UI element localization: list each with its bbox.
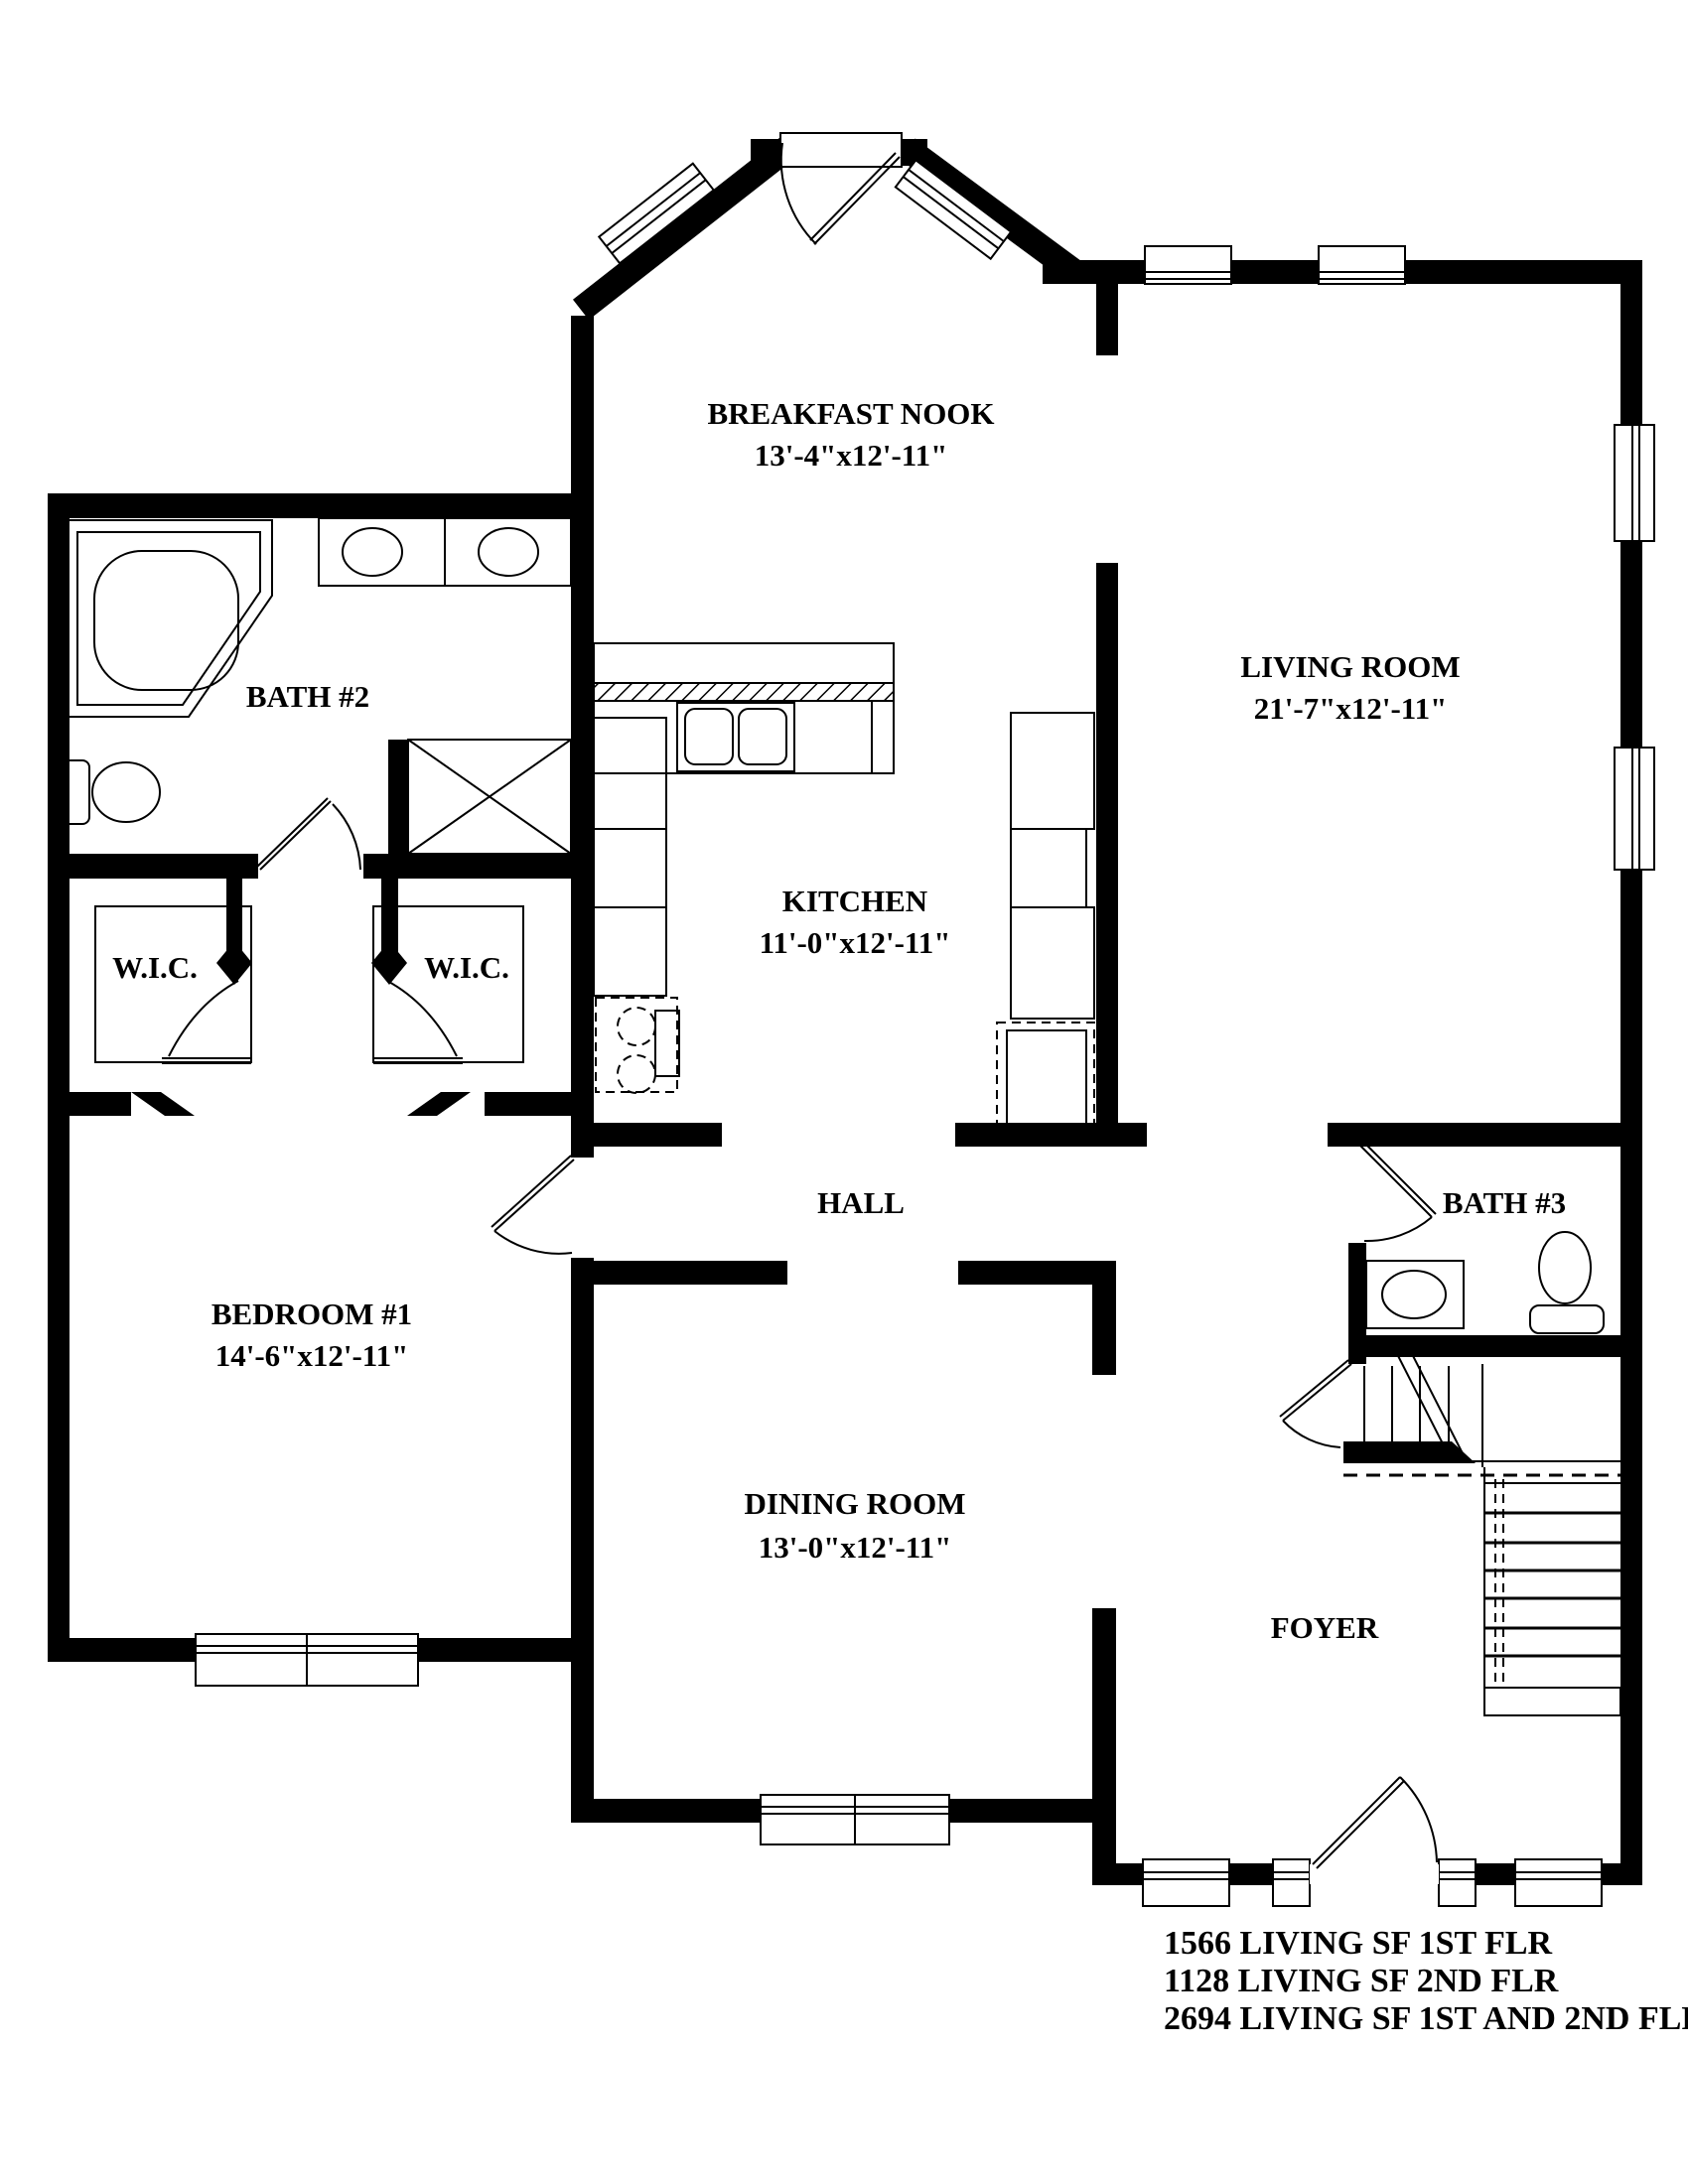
area-summary-line-1: 1566 LIVING SF 1ST FLR <box>1164 1925 1553 1962</box>
nook-top-window-right <box>1319 246 1405 284</box>
bath3-pedestal-sink <box>1530 1232 1604 1333</box>
room-label-breakfast-nook: BREAKFAST NOOK <box>707 396 994 431</box>
bath2-corner-tub <box>66 520 272 717</box>
nook-exterior-door <box>780 133 902 244</box>
understair-closet-door <box>1280 1360 1351 1447</box>
floorplan-drawing: BREAKFAST NOOK 13'-4"x12'-11" LIVING ROO… <box>0 0 1688 2184</box>
room-label-hall: HALL <box>817 1185 905 1220</box>
foyer-front-window-left <box>1143 1859 1229 1906</box>
label-layer: BREAKFAST NOOK 13'-4"x12'-11" LIVING ROO… <box>112 396 1688 2037</box>
front-door-sidelight-left <box>1273 1859 1310 1906</box>
bedroom-window <box>196 1634 418 1686</box>
floorplan-sheet: BREAKFAST NOOK 13'-4"x12'-11" LIVING ROO… <box>0 0 1688 2184</box>
kitchen-counters <box>594 643 894 773</box>
kitchen-left-cabinets <box>594 718 666 996</box>
kitchen-pantry-cabinets <box>997 713 1094 1135</box>
area-summary-line-3: 2694 LIVING SF 1ST AND 2ND FLR <box>1164 2000 1688 2037</box>
room-dims-living-room: 21'-7"x12'-11" <box>1254 691 1448 726</box>
stair-layer <box>1343 1340 1620 1715</box>
room-dims-dining-room: 13'-0"x12'-11" <box>759 1530 952 1565</box>
wic-left-door <box>162 981 251 1063</box>
room-label-foyer: FOYER <box>1271 1610 1379 1645</box>
room-label-dining-room: DINING ROOM <box>744 1486 965 1521</box>
room-label-living-room: LIVING ROOM <box>1240 649 1460 684</box>
nook-top-window-left <box>1145 246 1231 284</box>
room-label-bath3: BATH #3 <box>1443 1185 1566 1220</box>
room-label-wic-right: W.I.C. <box>424 950 509 985</box>
front-entry-door <box>1310 1777 1439 1884</box>
bath3-door <box>1358 1141 1436 1241</box>
bath2-toilet <box>58 760 160 824</box>
room-label-bedroom1: BEDROOM #1 <box>211 1297 412 1331</box>
foyer-front-window-right <box>1515 1859 1602 1906</box>
bath2-vanity <box>319 518 571 586</box>
front-door-sidelight-right <box>1439 1859 1476 1906</box>
room-label-wic-left: W.I.C. <box>112 950 198 985</box>
wic-right-door <box>373 981 463 1063</box>
area-summary-line-2: 1128 LIVING SF 2ND FLR <box>1164 1963 1559 1999</box>
kitchen-range <box>596 998 679 1093</box>
bath2-door <box>257 798 363 878</box>
room-dims-breakfast-nook: 13'-4"x12'-11" <box>755 438 948 473</box>
bedroom-hall-door <box>492 1156 574 1254</box>
living-right-window-lower <box>1615 748 1654 870</box>
dining-window <box>761 1795 949 1844</box>
room-label-bath2: BATH #2 <box>246 679 369 714</box>
room-dims-kitchen: 11'-0"x12'-11" <box>760 925 951 960</box>
bath3-toilet <box>1366 1261 1464 1328</box>
living-right-window-upper <box>1615 425 1654 541</box>
room-dims-bedroom1: 14'-6"x12'-11" <box>215 1338 409 1373</box>
room-label-kitchen: KITCHEN <box>782 884 927 918</box>
linen-closet <box>408 740 571 854</box>
